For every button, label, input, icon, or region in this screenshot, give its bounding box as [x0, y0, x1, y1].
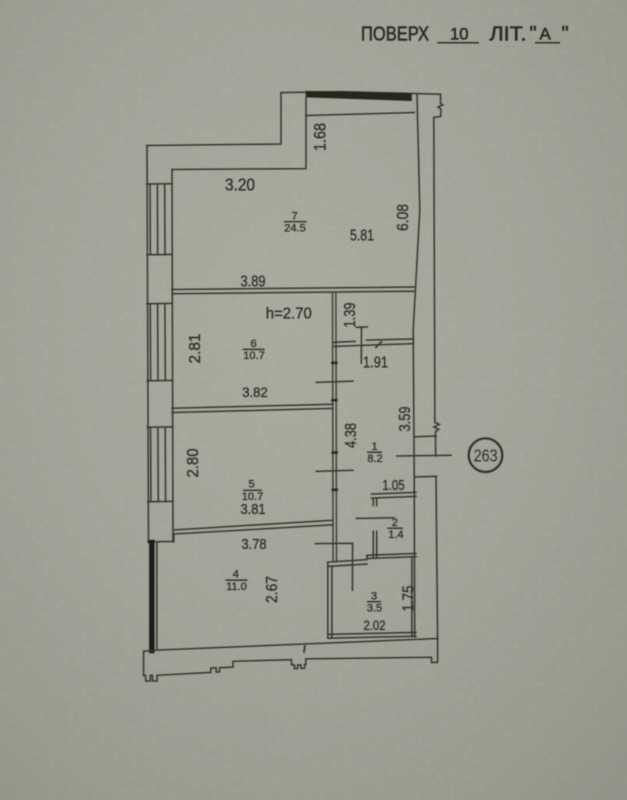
svg-text:3: 3: [371, 590, 377, 602]
svg-text:3.78: 3.78: [242, 536, 267, 553]
svg-text:7: 7: [291, 210, 297, 222]
svg-text:4: 4: [233, 569, 239, 581]
svg-text:6: 6: [250, 338, 256, 350]
svg-text:3.82: 3.82: [242, 384, 268, 400]
svg-text:5: 5: [248, 479, 254, 491]
svg-text:24.5: 24.5: [284, 223, 305, 235]
svg-text:2.02: 2.02: [364, 618, 386, 634]
svg-text:": ": [562, 23, 569, 45]
svg-text:1.4: 1.4: [388, 529, 403, 541]
svg-text:3.20: 3.20: [225, 175, 255, 195]
svg-text:1.68: 1.68: [312, 123, 330, 151]
svg-text:3.81: 3.81: [241, 501, 266, 518]
svg-text:1.39: 1.39: [342, 303, 359, 328]
svg-text:6.08: 6.08: [395, 204, 412, 231]
svg-text:8.2: 8.2: [367, 453, 382, 465]
svg-text:h=2.70: h=2.70: [266, 306, 312, 323]
svg-text:1.75: 1.75: [400, 586, 417, 612]
svg-text:ЛІТ.: ЛІТ.: [490, 24, 527, 46]
svg-text:3.5: 3.5: [367, 602, 382, 614]
svg-text:11.0: 11.0: [226, 581, 247, 593]
svg-text:2.81: 2.81: [187, 334, 204, 364]
svg-text:ПОВЕРХ: ПОВЕРХ: [361, 24, 429, 46]
svg-text:": ": [530, 23, 537, 45]
svg-text:10.7: 10.7: [243, 350, 264, 362]
svg-text:1: 1: [371, 441, 377, 453]
svg-text:2.67: 2.67: [264, 576, 281, 603]
svg-text:2: 2: [392, 517, 398, 529]
svg-text:5.81: 5.81: [350, 227, 374, 244]
svg-text:1.91: 1.91: [363, 354, 388, 371]
svg-text:2.80: 2.80: [185, 448, 202, 477]
svg-text:3.59: 3.59: [397, 407, 414, 432]
svg-text:263: 263: [474, 446, 498, 466]
svg-text:А: А: [540, 25, 552, 44]
svg-text:10: 10: [450, 25, 469, 44]
svg-text:4.38: 4.38: [343, 423, 360, 448]
svg-text:1.05: 1.05: [382, 478, 404, 494]
svg-text:3.89: 3.89: [241, 274, 266, 291]
